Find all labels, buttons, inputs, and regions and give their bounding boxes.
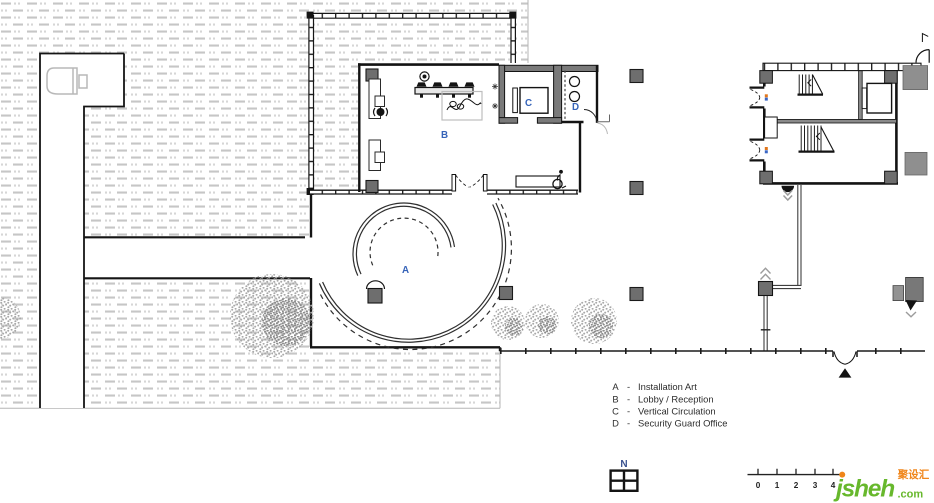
counter-and-chairs bbox=[415, 72, 475, 98]
door-swing bbox=[584, 110, 597, 123]
svg-text:B: B bbox=[612, 393, 618, 404]
room-label-a: A bbox=[402, 265, 409, 276]
site-boundary bbox=[500, 185, 925, 378]
room-label-c: C bbox=[525, 98, 532, 109]
scale-bar: 0 1 2 3 4 bbox=[748, 469, 841, 490]
legend: A - Installation Art B - Lobby / Recepti… bbox=[612, 381, 727, 428]
logo-badge: 聚设汇 bbox=[897, 468, 930, 481]
legend-item: B - Lobby / Reception bbox=[612, 393, 713, 404]
vent-icon bbox=[492, 84, 498, 110]
svg-text:C: C bbox=[612, 405, 619, 416]
scale-tick-label: 0 bbox=[756, 481, 761, 490]
stair-block bbox=[750, 34, 930, 200]
double-door bbox=[452, 175, 487, 192]
floor-plan-drawing: A B C D A - Installation Art B - Lobby /… bbox=[0, 0, 934, 503]
lobby-reception bbox=[358, 63, 580, 192]
logo-text[interactable]: jsheh bbox=[833, 476, 894, 503]
column bbox=[630, 70, 643, 83]
lobby-south-glass-facade bbox=[310, 190, 578, 194]
floor-plan-canvas: A B C D A - Installation Art B - Lobby /… bbox=[0, 0, 934, 503]
svg-text:Lobby / Reception: Lobby / Reception bbox=[638, 393, 714, 404]
svg-text:-: - bbox=[627, 381, 630, 392]
legend-item: A - Installation Art bbox=[612, 381, 697, 392]
svg-text:Vertical Circulation: Vertical Circulation bbox=[638, 405, 716, 416]
svg-text:D: D bbox=[612, 417, 619, 428]
stool-icon bbox=[570, 77, 580, 87]
logo-dot-icon bbox=[839, 472, 845, 478]
security-guard-office bbox=[562, 65, 610, 134]
svg-text:Security Guard Office: Security Guard Office bbox=[638, 417, 727, 428]
site-logo[interactable]: jsheh 聚设汇 .com bbox=[833, 468, 930, 503]
entry-arrow bbox=[839, 368, 852, 377]
room-label-b: B bbox=[441, 130, 448, 141]
column bbox=[885, 171, 898, 184]
flag-marker bbox=[922, 34, 928, 42]
north-glass-facade bbox=[763, 34, 929, 71]
site-entrance-door bbox=[833, 351, 857, 377]
svg-text:-: - bbox=[627, 405, 630, 416]
column bbox=[630, 182, 643, 195]
logo-domain: .com bbox=[898, 489, 924, 501]
column bbox=[759, 282, 773, 296]
column bbox=[885, 71, 898, 84]
column bbox=[500, 287, 513, 300]
legend-item: C - Vertical Circulation bbox=[612, 405, 716, 416]
av-equipment bbox=[442, 92, 482, 121]
stair-upper bbox=[798, 75, 824, 95]
column bbox=[760, 171, 773, 184]
column-dome bbox=[367, 281, 385, 289]
reception-desk bbox=[369, 79, 385, 171]
north-symbol: N bbox=[611, 459, 638, 491]
svg-text:A: A bbox=[612, 381, 619, 392]
edge-service-blocks bbox=[893, 66, 928, 317]
svg-text:Installation Art: Installation Art bbox=[638, 381, 697, 392]
elevator-car bbox=[867, 83, 892, 113]
stair-lower bbox=[799, 126, 835, 152]
north-label: N bbox=[620, 459, 627, 470]
svg-text:-: - bbox=[627, 393, 630, 404]
door-swing bbox=[916, 50, 929, 63]
legend-item: D - Security Guard Office bbox=[612, 417, 727, 428]
scale-tick-label: 2 bbox=[794, 481, 799, 490]
svg-text:-: - bbox=[627, 417, 630, 428]
room-label-d: D bbox=[572, 102, 579, 113]
scale-tick-label: 3 bbox=[813, 481, 818, 490]
column bbox=[630, 288, 643, 301]
stool-icon bbox=[570, 92, 580, 102]
column bbox=[760, 71, 773, 84]
installation-art-spiral bbox=[319, 198, 511, 349]
column bbox=[366, 181, 378, 193]
scale-tick-label: 1 bbox=[775, 481, 780, 490]
elevator-core bbox=[492, 65, 598, 123]
door-swing bbox=[751, 90, 760, 159]
scale-tick-label: 4 bbox=[831, 481, 836, 490]
